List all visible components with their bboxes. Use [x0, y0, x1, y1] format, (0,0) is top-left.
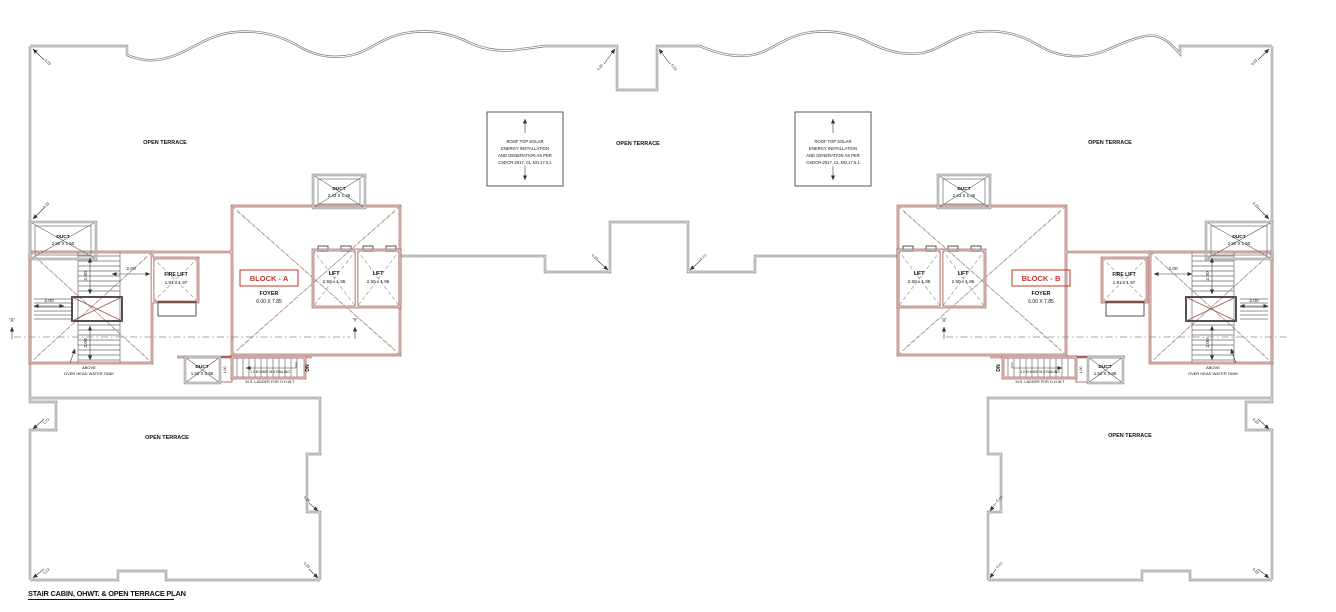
solar-note-line3: AND GENERATION AS PER: [498, 153, 552, 158]
drawing-title-block: STAIR CABIN, OHWT. & OPEN TERRACE PLAN: [28, 589, 186, 600]
solar-note-text-left: ROOF TOP SOLAR ENERGY INSTALLATION AND G…: [498, 139, 552, 165]
ladder-strip-b-dim: 1.00: [1079, 367, 1083, 374]
duct-bottom-b-label: DUCT: [1098, 364, 1111, 370]
fire-lift-a-label: FIRE LIFT: [164, 272, 187, 278]
duct-bottom-a-size: 1.52 X 0.95: [191, 371, 214, 376]
wall-dim-callout: 0.23: [995, 561, 1003, 569]
solar-note-line2: ENERGY INSTALLATION: [501, 146, 549, 151]
dn-marker-b: DN: [996, 364, 1002, 372]
wall-dim-callout: 0.23: [42, 417, 50, 425]
foyer-b-label: FOYER: [1032, 291, 1051, 297]
lift-b2-label: LIFT: [958, 271, 969, 277]
duct-bottom-a-label: DUCT: [195, 364, 208, 370]
section-marker-x-left: 'X': [9, 318, 14, 324]
block-b-name: BLOCK - B: [1022, 274, 1061, 283]
ohwt-note-b-line1: ABOVE: [1206, 365, 1220, 370]
solar-note-line1: ROOF TOP SOLAR: [814, 139, 851, 144]
duct-top-a-label: DUCT: [332, 186, 345, 192]
ohwt-note-a-line1: ABOVE: [82, 365, 96, 370]
lift-b1-label: LIFT: [914, 271, 925, 277]
duct-top-a-size: 2.43 X 1.45: [328, 193, 351, 198]
block-b-walls: [898, 206, 1272, 363]
block-a-name: BLOCK - A: [250, 274, 289, 283]
duct-side-a-label: DUCT: [56, 234, 69, 240]
stair-b-dim-right: 2.00: [1249, 298, 1259, 304]
wall-dim-callout: 0.23: [42, 567, 50, 575]
open-terrace-label-top-right: OPEN TERRACE: [1088, 140, 1132, 146]
solar-note-line3: AND GENERATION AS PER: [806, 153, 860, 158]
stair-a-dim-left: 2.00: [44, 298, 54, 304]
duct-bottom-b-size: 1.52 X 0.95: [1094, 371, 1117, 376]
wall-dim-callout: 0.23: [42, 201, 50, 209]
corner-arrows: [33, 49, 1269, 578]
fire-lift-b-size: 1.91 x 1.97: [1113, 280, 1136, 285]
wall-dim-callout: 0.23: [303, 561, 311, 569]
open-terrace-label-top-left: OPEN TERRACE: [143, 140, 187, 146]
lift-b1-size: 2.50 x 1.95: [908, 279, 931, 284]
open-terrace-label-bottom-left: OPEN TERRACE: [145, 435, 189, 441]
wall-dim-callout: 0.23: [1252, 567, 1260, 575]
terrace-outline: [30, 31, 1272, 580]
section-marker-y: 'Y': [352, 318, 357, 324]
solar-note-line1: ROOF TOP SOLAR: [506, 139, 543, 144]
open-terrace-label-bottom-right: OPEN TERRACE: [1108, 433, 1152, 439]
ladder-b-inner-note: 1.0 M WIDE M.S RAILING: [1020, 370, 1060, 374]
solar-note-text-right: ROOF TOP SOLAR ENERGY INSTALLATION AND G…: [806, 139, 860, 165]
stair-cabin-a: [34, 252, 122, 363]
solar-note-line2: ENERGY INSTALLATION: [809, 146, 857, 151]
foyer-a-label: FOYER: [260, 291, 279, 297]
lift-a1-label: LIFT: [329, 271, 340, 277]
fire-lift-a-size: 1.91 x 1.97: [165, 280, 188, 285]
open-terrace-label-top-center: OPEN TERRACE: [616, 141, 660, 147]
ladder-strip-a-dim: 1.00: [223, 367, 227, 374]
wall-dim-callout: 0.23: [1250, 58, 1258, 66]
lift-a2-size: 2.50 x 1.95: [367, 279, 390, 284]
stair-a-dim-down: 2.00: [83, 338, 89, 348]
duct-top-b-label: DUCT: [957, 186, 970, 192]
floor-plan-canvas: OPEN TERRACE OPEN TERRACE OPEN TERRACE O…: [0, 0, 1336, 612]
wall-dim-callout: 0.23: [44, 58, 52, 66]
section-lines: [12, 327, 1288, 339]
drawing-title: STAIR CABIN, OHWT. & OPEN TERRACE PLAN: [28, 589, 186, 598]
ohwt-note-a-line2: OVER HEAD WATER TANK: [64, 371, 114, 376]
duct-side-b-size: 2.50 X 1.50: [1228, 241, 1251, 246]
duct-side-a-size: 2.50 X 1.50: [52, 241, 75, 246]
ladder-b-note: M.S. LADDER FOR O.H.W.T: [1016, 380, 1066, 384]
lift-b2-size: 2.50 x 1.95: [952, 279, 975, 284]
lift-a2-label: LIFT: [373, 271, 384, 277]
duct-side-b-label: DUCT: [1232, 234, 1245, 240]
stair-b-dim-down: 2.00: [1205, 338, 1211, 348]
stair-a-dim-top: 2.00: [126, 266, 136, 272]
wall-dim-callout: 0.23: [596, 63, 603, 71]
wall-dim-callout: 0.23: [303, 495, 311, 503]
fire-lift-b-label: FIRE LIFT: [1112, 272, 1135, 278]
stair-b-dim-up: 2.00: [1205, 271, 1211, 281]
wall-dim-callout: 0.23: [699, 253, 707, 261]
solar-note-line4: CSDCR-2017, CL.NO.17.5.1: [806, 160, 860, 165]
block-b-diagonals: [898, 206, 1272, 363]
stair-b-dim-top: 2.00: [1168, 266, 1178, 272]
solar-note-line4: CSDCR-2017, CL.NO.17.5.1: [498, 160, 552, 165]
ladder-a-note: M.S. LADDER FOR O.H.W.T: [246, 380, 296, 384]
wall-dim-callout: 0.23: [1252, 417, 1260, 425]
stair-cabin-b: [1186, 252, 1268, 363]
wall-dim-callout: 0.23: [670, 63, 677, 71]
ohwt-note-b-line2: OVER HEAD WATER TANK: [1188, 371, 1238, 376]
lift-a1-size: 2.50 x 1.95: [323, 279, 346, 284]
dimension-lines: [34, 258, 1268, 363]
dn-marker-a: DN: [305, 364, 311, 372]
foyer-b-size: 6.00 X 7.85: [1028, 299, 1054, 305]
duct-top-b-size: 2.43 X 1.45: [953, 193, 976, 198]
foyer-a-size: 6.00 X 7.85: [256, 299, 282, 305]
stair-a-dim-up: 2.00: [83, 271, 89, 281]
wall-dim-callout: 0.23: [591, 253, 599, 261]
ladder-a-inner-note: 1.0 M WIDE M.S RAILING: [250, 370, 290, 374]
floor-plan-sheet: OPEN TERRACE OPEN TERRACE OPEN TERRACE O…: [0, 0, 1336, 612]
section-marker-x-right: 'X': [941, 318, 946, 324]
